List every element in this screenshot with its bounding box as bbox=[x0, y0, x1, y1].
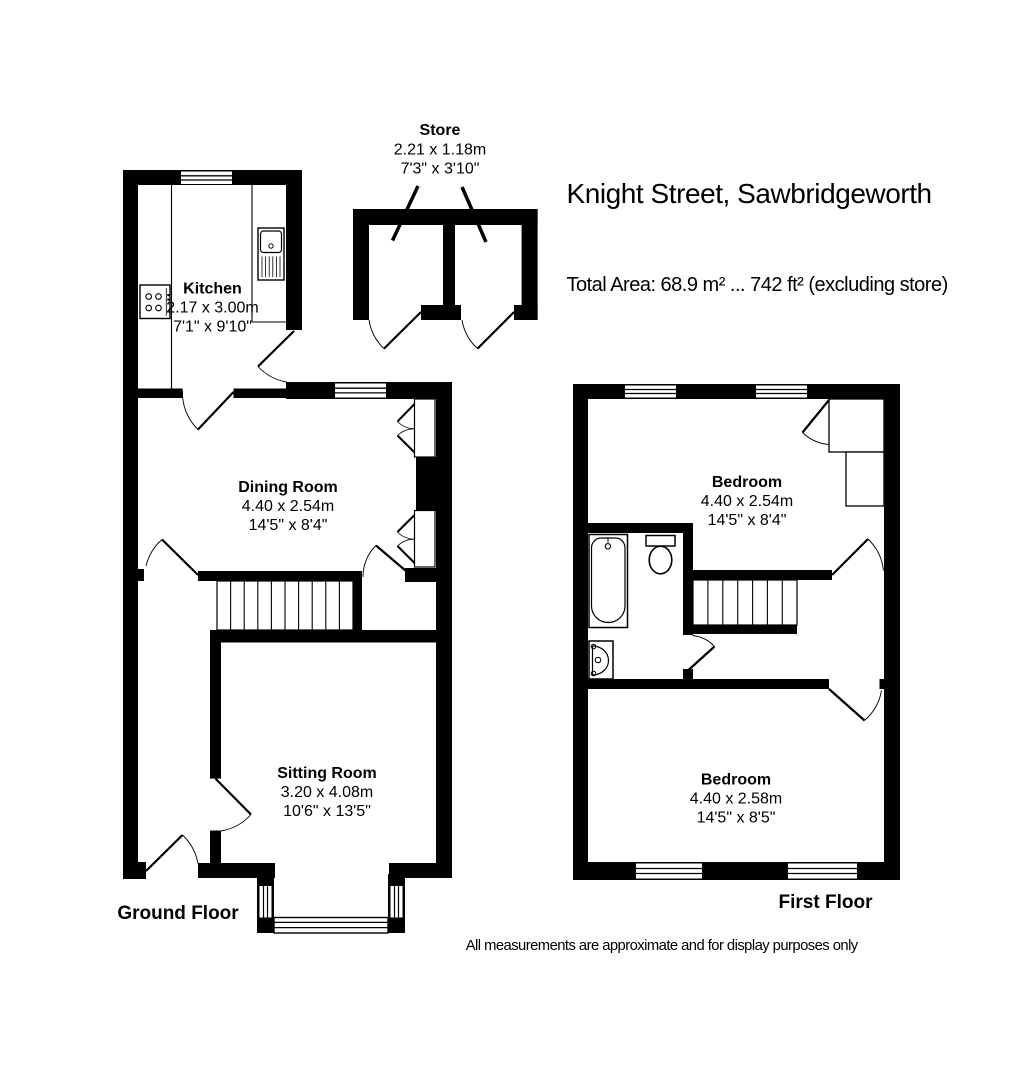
svg-text:7'1" x 9'10": 7'1" x 9'10" bbox=[173, 319, 252, 336]
svg-text:Store: Store bbox=[420, 122, 461, 139]
svg-text:Knight Street, Sawbridgeworth: Knight Street, Sawbridgeworth bbox=[567, 178, 932, 209]
svg-text:14'5" x 8'4": 14'5" x 8'4" bbox=[249, 517, 328, 534]
svg-text:7'3" x 3'10": 7'3" x 3'10" bbox=[401, 161, 480, 178]
svg-text:10'6" x 13'5": 10'6" x 13'5" bbox=[283, 803, 371, 820]
svg-text:Ground Floor: Ground Floor bbox=[117, 903, 239, 924]
svg-text:14'5" x 8'4": 14'5" x 8'4" bbox=[708, 512, 787, 529]
svg-text:Sitting Room: Sitting Room bbox=[277, 765, 377, 782]
svg-text:3.20 x 4.08m: 3.20 x 4.08m bbox=[281, 784, 374, 801]
svg-text:First Floor: First Floor bbox=[779, 892, 874, 913]
svg-text:Total Area: 68.9 m² ... 742 ft: Total Area: 68.9 m² ... 742 ft² (excludi… bbox=[567, 274, 948, 296]
svg-text:4.40 x 2.54m: 4.40 x 2.54m bbox=[701, 493, 794, 510]
svg-text:4.40 x 2.58m: 4.40 x 2.58m bbox=[690, 791, 783, 808]
svg-text:Dining Room: Dining Room bbox=[238, 479, 338, 496]
svg-text:14'5" x 8'5": 14'5" x 8'5" bbox=[697, 810, 776, 827]
svg-text:Kitchen: Kitchen bbox=[183, 281, 242, 298]
svg-text:4.40 x 2.54m: 4.40 x 2.54m bbox=[242, 498, 335, 515]
svg-text:2.21 x 1.18m: 2.21 x 1.18m bbox=[394, 142, 487, 159]
svg-text:All measurements are approxima: All measurements are approximate and for… bbox=[466, 938, 859, 954]
svg-text:Bedroom: Bedroom bbox=[712, 474, 782, 491]
svg-text:2.17 x 3.00m: 2.17 x 3.00m bbox=[166, 300, 259, 317]
svg-text:Bedroom: Bedroom bbox=[701, 772, 771, 789]
